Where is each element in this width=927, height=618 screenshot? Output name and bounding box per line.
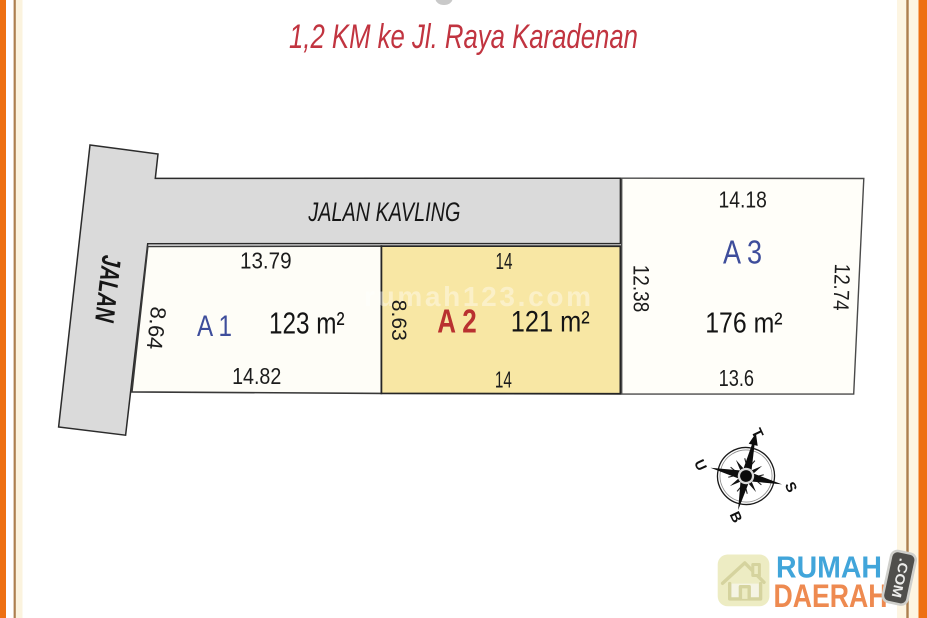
- svg-text:13.6: 13.6: [719, 365, 754, 391]
- svg-text:14.82: 14.82: [232, 363, 281, 389]
- svg-text:JALAN KAVLING: JALAN KAVLING: [308, 197, 461, 227]
- svg-text:123 m²: 123 m²: [269, 305, 345, 340]
- svg-text:8.64: 8.64: [142, 305, 171, 350]
- svg-text:14: 14: [496, 248, 513, 274]
- svg-text:A 2: A 2: [437, 303, 477, 340]
- svg-text:176 m²: 176 m²: [705, 307, 783, 339]
- svg-text:A 3: A 3: [723, 233, 762, 270]
- svg-text:DAERAH: DAERAH: [774, 578, 888, 614]
- svg-text:121 m²: 121 m²: [511, 306, 590, 339]
- svg-text:13.79: 13.79: [240, 247, 292, 273]
- svg-text:12.74: 12.74: [828, 263, 855, 311]
- svg-text:A 1: A 1: [197, 310, 232, 343]
- svg-text:12.38: 12.38: [629, 265, 654, 313]
- svg-text:14: 14: [495, 366, 512, 392]
- svg-text:14.18: 14.18: [719, 187, 767, 213]
- svg-text:8.63: 8.63: [387, 300, 410, 341]
- svg-text:1,2 KM ke Jl. Raya Karadenan: 1,2 KM ke Jl. Raya Karadenan: [289, 18, 638, 56]
